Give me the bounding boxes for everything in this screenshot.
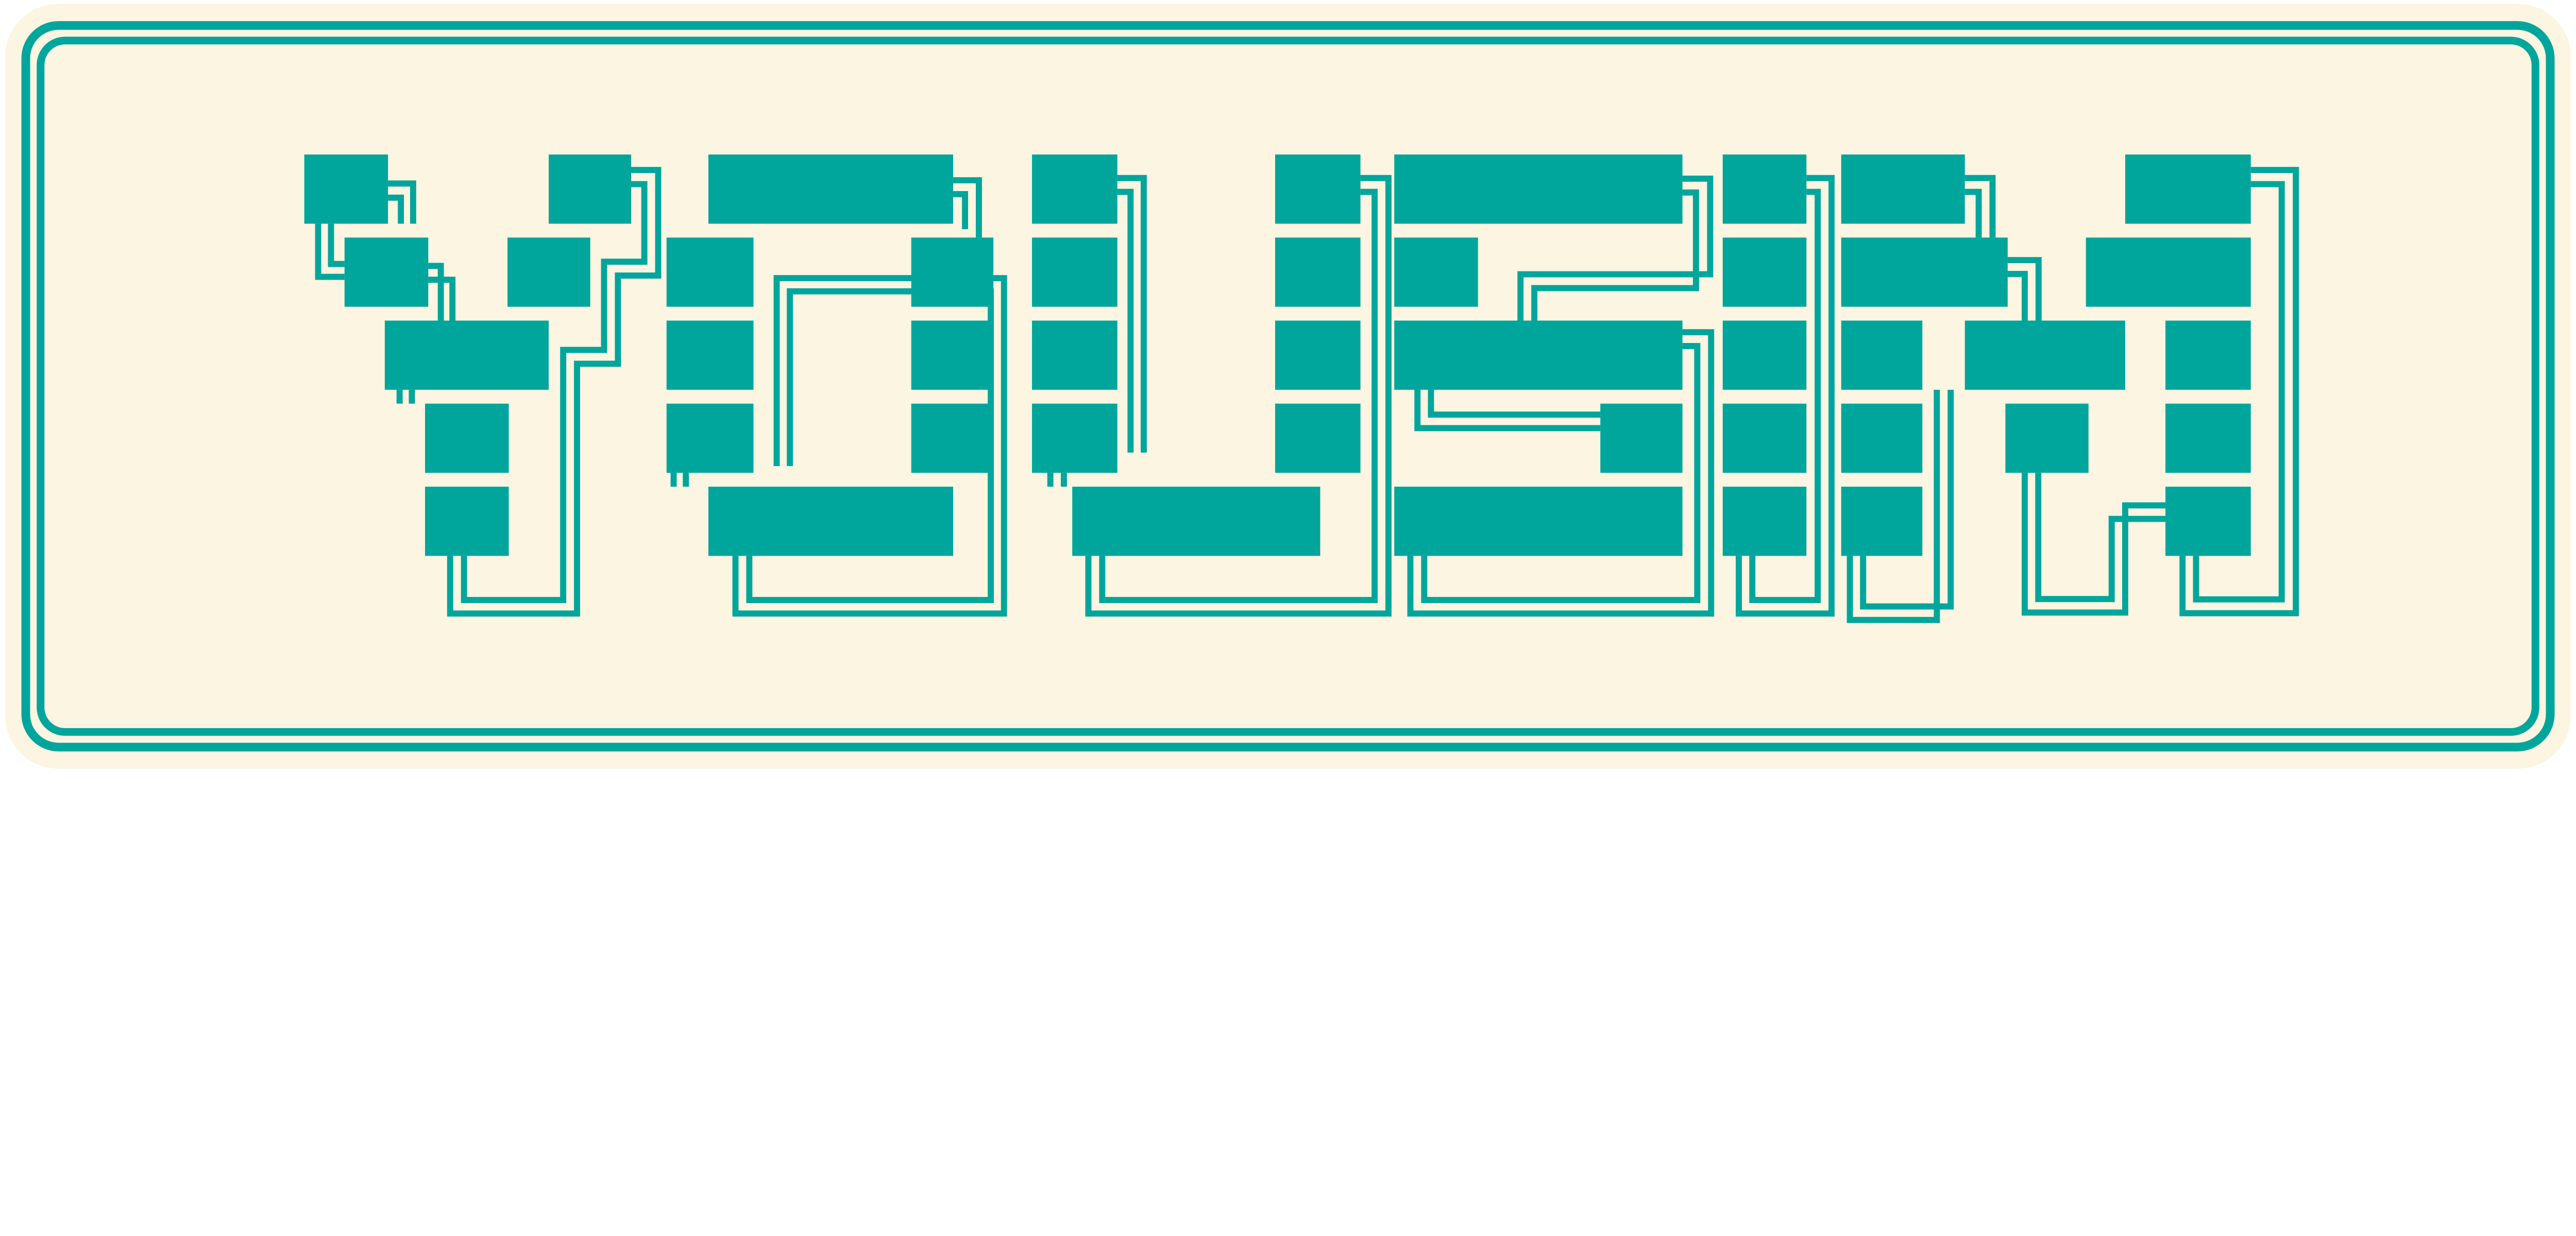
letter-block bbox=[1032, 237, 1117, 306]
yousim-logo-card: YOUSIM bbox=[0, 0, 2576, 772]
letter-block bbox=[1723, 321, 1807, 390]
letter-block bbox=[1965, 321, 2125, 390]
letter-block bbox=[507, 237, 590, 306]
letter-block bbox=[1032, 404, 1117, 473]
letter-block bbox=[1394, 487, 1682, 556]
letter-block bbox=[1394, 154, 1682, 224]
letter-block bbox=[1394, 237, 1478, 306]
letter-block bbox=[667, 237, 754, 306]
letter-block bbox=[2086, 237, 2251, 306]
letter-block bbox=[1723, 487, 1807, 556]
letter-block bbox=[1723, 404, 1807, 473]
letter-block bbox=[1032, 321, 1117, 390]
letter-block bbox=[304, 154, 388, 224]
letter-block bbox=[2165, 321, 2251, 390]
letter-block bbox=[425, 487, 509, 556]
letter-block bbox=[1723, 237, 1807, 306]
letter-block bbox=[911, 237, 993, 306]
letter-block bbox=[708, 154, 953, 224]
yousim-wordmark bbox=[0, 0, 2576, 772]
letter-block bbox=[1600, 404, 1682, 473]
letter-block bbox=[1841, 321, 1923, 390]
letter-block bbox=[2165, 487, 2251, 556]
letter-block bbox=[425, 404, 509, 473]
letter-block bbox=[2165, 404, 2251, 473]
letter-block bbox=[911, 321, 993, 390]
letter-i bbox=[1723, 154, 1832, 613]
letter-block bbox=[1841, 154, 1965, 224]
letter-block bbox=[1841, 404, 1923, 473]
letter-block bbox=[1723, 154, 1807, 224]
letter-block bbox=[911, 404, 993, 473]
letter-block bbox=[1275, 404, 1361, 473]
letter-s bbox=[1394, 154, 1711, 613]
letter-block bbox=[1275, 154, 1361, 224]
letter-block bbox=[708, 487, 953, 556]
letter-block bbox=[1394, 321, 1682, 390]
letter-block bbox=[345, 237, 429, 306]
letter-block bbox=[2006, 404, 2089, 473]
letter-block bbox=[549, 154, 631, 224]
letter-block bbox=[1275, 237, 1361, 306]
letter-block bbox=[1032, 154, 1117, 224]
letter-block bbox=[1072, 487, 1320, 556]
logo-title: YOUSIM bbox=[0, 783, 1, 784]
letter-block bbox=[667, 321, 754, 390]
letter-block bbox=[1841, 487, 1923, 556]
letter-block bbox=[1841, 237, 2008, 306]
letter-block bbox=[667, 404, 754, 473]
letter-block bbox=[1275, 321, 1361, 390]
letter-block bbox=[385, 321, 549, 390]
letter-block bbox=[2125, 154, 2251, 224]
